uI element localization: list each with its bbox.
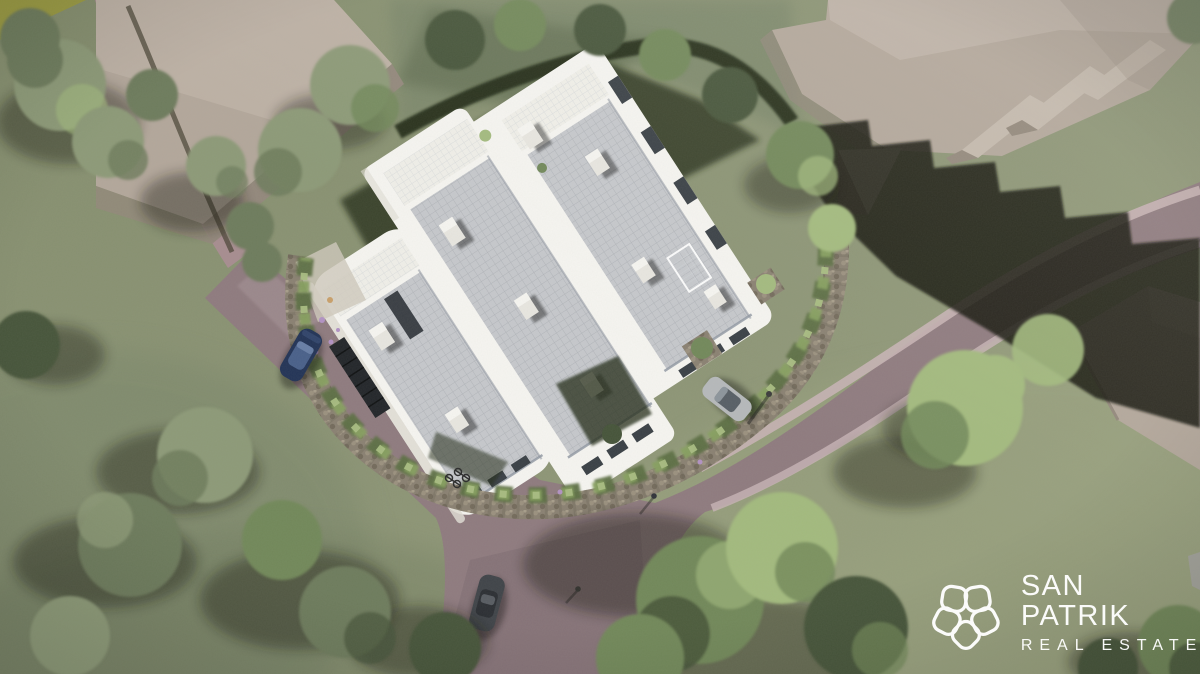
brand-tagline: REAL ESTATE [1021, 637, 1200, 655]
brand-text-block: SAN PATRIK REAL ESTATE [1021, 571, 1200, 656]
clover-logo-icon [926, 570, 1006, 656]
aerial-render: SAN PATRIK REAL ESTATE [0, 0, 1200, 674]
brand-name: SAN PATRIK [1021, 571, 1200, 632]
brand-watermark: SAN PATRIK REAL ESTATE [926, 570, 1200, 656]
